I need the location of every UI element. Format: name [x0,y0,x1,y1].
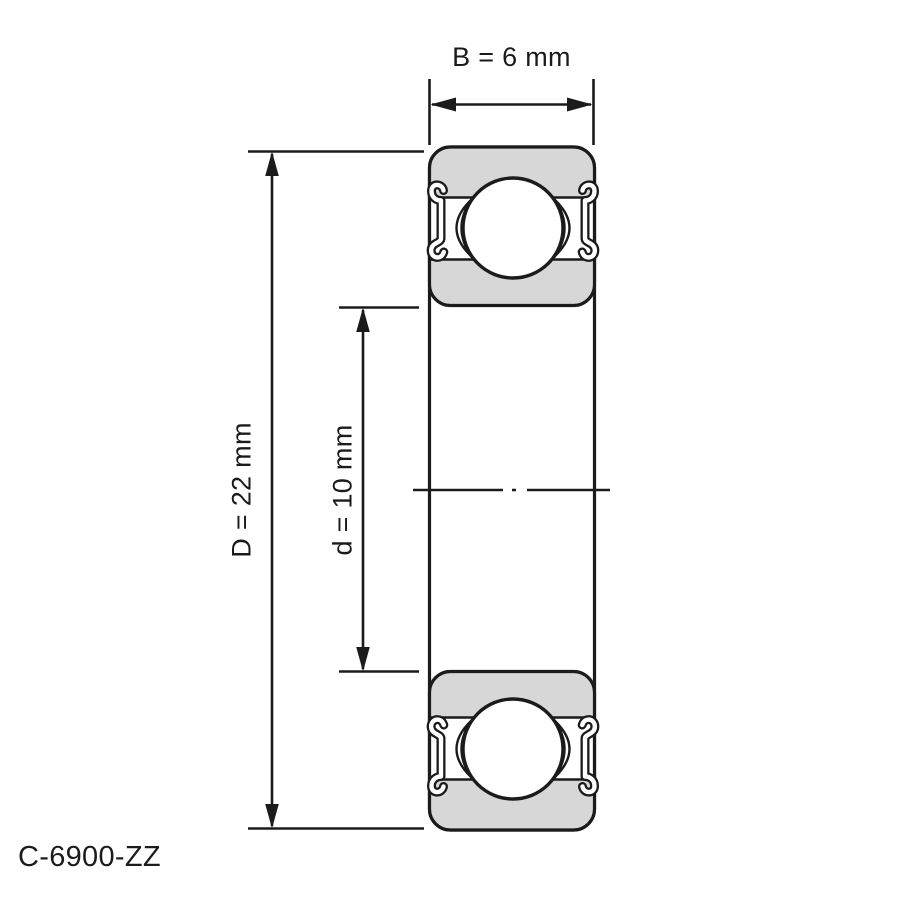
bearing-dimension-diagram: B = 6 mm D = 22 mm d = 10 mm C-6900-ZZ [0,0,900,900]
bearing-drawing [0,0,900,900]
bearing-cross-section-bottom [430,672,595,831]
dimension-label-width: B = 6 mm [429,42,594,73]
drawing-strokes [248,79,610,830]
dimension-B [430,79,594,145]
part-number-label: C-6900-ZZ [18,841,161,874]
bearing-cross-section-top [430,147,595,306]
dimension-label-bore-diameter: d = 10 mm [328,424,359,555]
dimension-label-outer-diameter: D = 22 mm [227,422,258,558]
